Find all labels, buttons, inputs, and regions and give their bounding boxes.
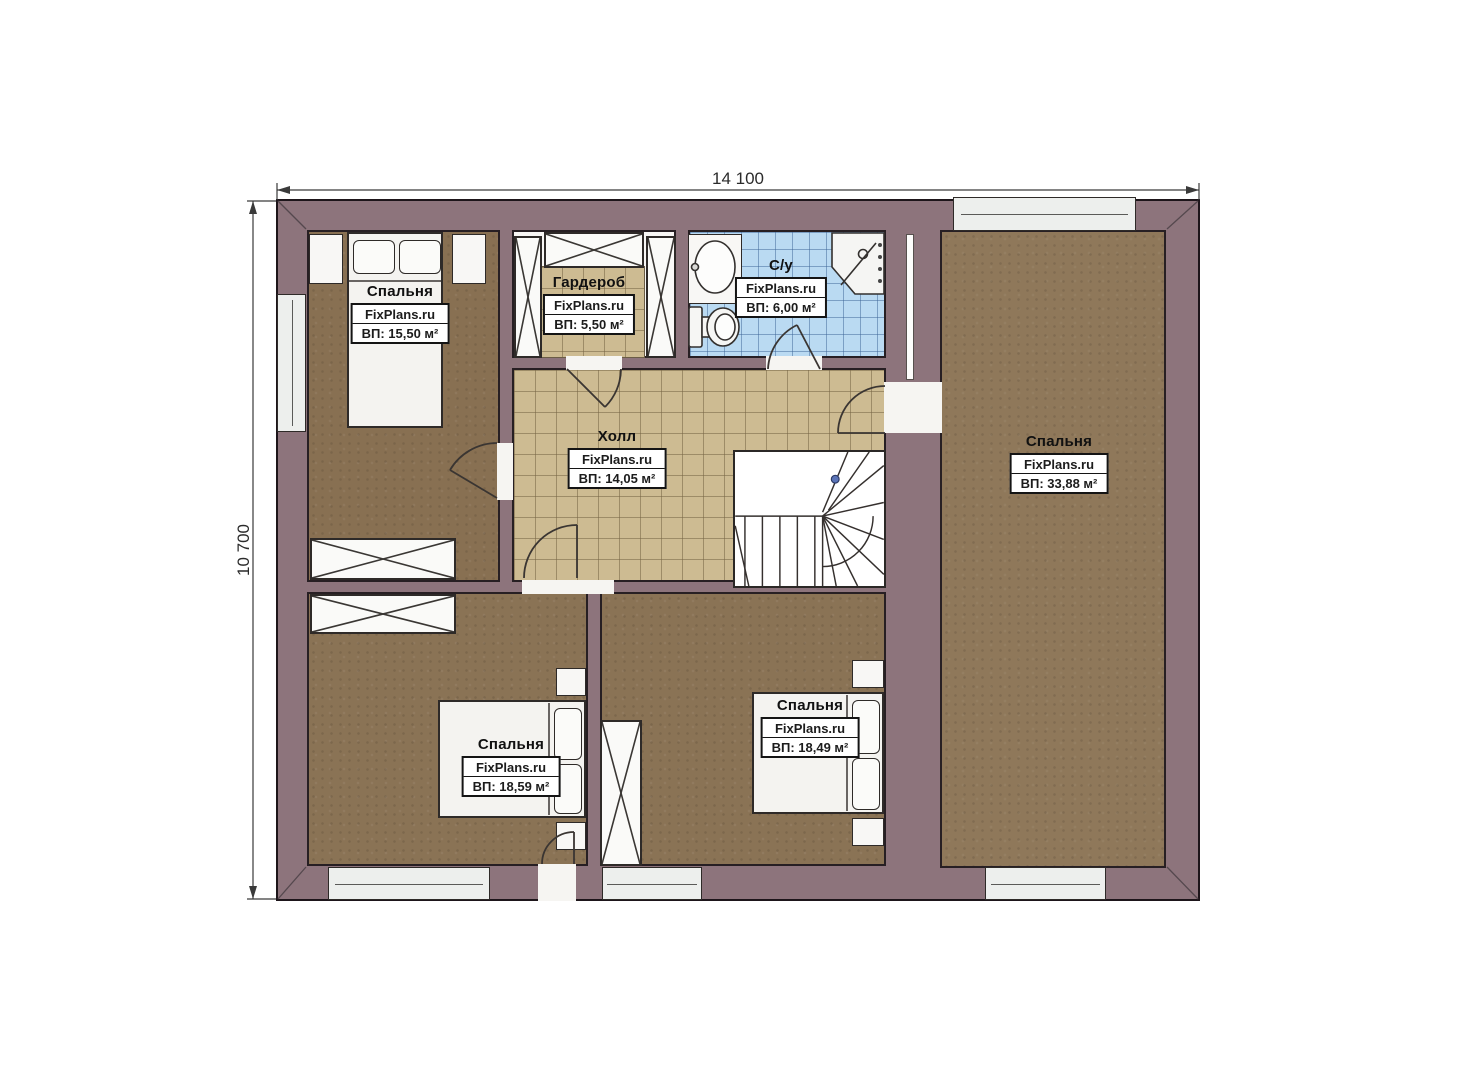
window-glass-line bbox=[607, 884, 697, 885]
wardrobe-cabinet bbox=[310, 594, 456, 634]
nightstand bbox=[556, 668, 586, 696]
window-top-right-bedroom bbox=[953, 197, 1136, 231]
room-name: Спальня bbox=[351, 283, 450, 300]
room-info-box: FixPlans.ru ВП: 6,00 м² bbox=[735, 277, 827, 318]
door-opening-balcony bbox=[538, 864, 576, 901]
room-area: ВП: 18,49 м² bbox=[763, 738, 858, 756]
room-name: Спальня bbox=[1010, 433, 1109, 450]
window-bottom-middle bbox=[602, 867, 702, 900]
pillow bbox=[399, 240, 441, 274]
room-name: Спальня bbox=[462, 736, 561, 753]
wardrobe-cabinet bbox=[646, 236, 676, 358]
nightstand bbox=[852, 660, 884, 688]
staircase-treads bbox=[735, 452, 884, 586]
nightstand bbox=[452, 234, 486, 284]
watermark: FixPlans.ru bbox=[545, 296, 633, 315]
watermark: FixPlans.ru bbox=[353, 305, 448, 324]
window-glass-line bbox=[335, 884, 482, 885]
room-area: ВП: 18,59 м² bbox=[464, 777, 559, 795]
room-info-box: FixPlans.ru ВП: 5,50 м² bbox=[543, 294, 635, 335]
window-glass-line bbox=[961, 214, 1128, 215]
pillow bbox=[353, 240, 395, 274]
wardrobe-cabinet bbox=[544, 232, 644, 268]
window-bottom-right bbox=[985, 867, 1106, 900]
stair-post-dot bbox=[831, 475, 839, 483]
watermark: FixPlans.ru bbox=[737, 279, 825, 298]
room-info-box: FixPlans.ru ВП: 18,59 м² bbox=[462, 756, 561, 797]
room-info-box: FixPlans.ru ВП: 18,49 м² bbox=[761, 717, 860, 758]
room-area: ВП: 5,50 м² bbox=[545, 315, 633, 333]
room-label-bathroom: С/у FixPlans.ru ВП: 6,00 м² bbox=[735, 257, 827, 318]
room-name: Спальня bbox=[761, 697, 860, 714]
room-label-bedroom-bottom-left: Спальня FixPlans.ru ВП: 18,59 м² bbox=[462, 736, 561, 797]
door-opening-bathroom bbox=[766, 356, 822, 370]
watermark: FixPlans.ru bbox=[763, 719, 858, 738]
room-label-bedroom-bottom-middle: Спальня FixPlans.ru ВП: 18,49 м² bbox=[761, 697, 860, 758]
floor-plan: 14 100 10 700 Спальня FixPlans.ru ВП: 15… bbox=[0, 0, 1473, 1080]
door-opening-bedroom-right bbox=[884, 382, 942, 433]
watermark: FixPlans.ru bbox=[570, 450, 665, 469]
floor-bedroom-right bbox=[940, 230, 1166, 868]
room-label-hall: Холл FixPlans.ru ВП: 14,05 м² bbox=[568, 428, 667, 489]
room-label-bedroom-right: Спальня FixPlans.ru ВП: 33,88 м² bbox=[1010, 433, 1109, 494]
room-name: Холл bbox=[568, 428, 667, 445]
wall-shaft bbox=[906, 234, 914, 380]
door-opening-hall-south bbox=[522, 580, 614, 594]
room-info-box: FixPlans.ru ВП: 15,50 м² bbox=[351, 303, 450, 344]
door-opening-wardrobe bbox=[566, 356, 622, 370]
room-name: С/у bbox=[735, 257, 827, 274]
watermark: FixPlans.ru bbox=[1012, 455, 1107, 474]
room-area: ВП: 15,50 м² bbox=[353, 324, 448, 342]
window-bottom-left bbox=[328, 867, 490, 900]
room-info-box: FixPlans.ru ВП: 14,05 м² bbox=[568, 448, 667, 489]
room-label-bedroom-top-left: Спальня FixPlans.ru ВП: 15,50 м² bbox=[351, 283, 450, 344]
room-area: ВП: 14,05 м² bbox=[570, 469, 665, 487]
window-glass-line bbox=[991, 884, 1101, 885]
room-area: ВП: 33,88 м² bbox=[1012, 474, 1107, 492]
wardrobe-cabinet bbox=[600, 720, 642, 866]
room-label-wardrobe: Гардероб FixPlans.ru ВП: 5,50 м² bbox=[543, 274, 635, 335]
room-area: ВП: 6,00 м² bbox=[737, 298, 825, 316]
bathroom-counter bbox=[688, 234, 742, 304]
wardrobe-cabinet bbox=[514, 236, 542, 358]
dimension-top-label: 14 100 bbox=[712, 169, 764, 189]
dimension-left-label: 10 700 bbox=[234, 524, 254, 576]
nightstand bbox=[309, 234, 343, 284]
window-glass-line bbox=[292, 300, 293, 425]
nightstand bbox=[852, 818, 884, 846]
watermark: FixPlans.ru bbox=[464, 758, 559, 777]
pillow bbox=[852, 758, 880, 810]
wardrobe-cabinet bbox=[310, 538, 456, 580]
window-left bbox=[277, 294, 306, 432]
staircase bbox=[733, 450, 886, 588]
door-opening-bedroom-top-left bbox=[497, 443, 513, 500]
nightstand bbox=[556, 822, 586, 850]
room-info-box: FixPlans.ru ВП: 33,88 м² bbox=[1010, 453, 1109, 494]
room-name: Гардероб bbox=[543, 274, 635, 291]
